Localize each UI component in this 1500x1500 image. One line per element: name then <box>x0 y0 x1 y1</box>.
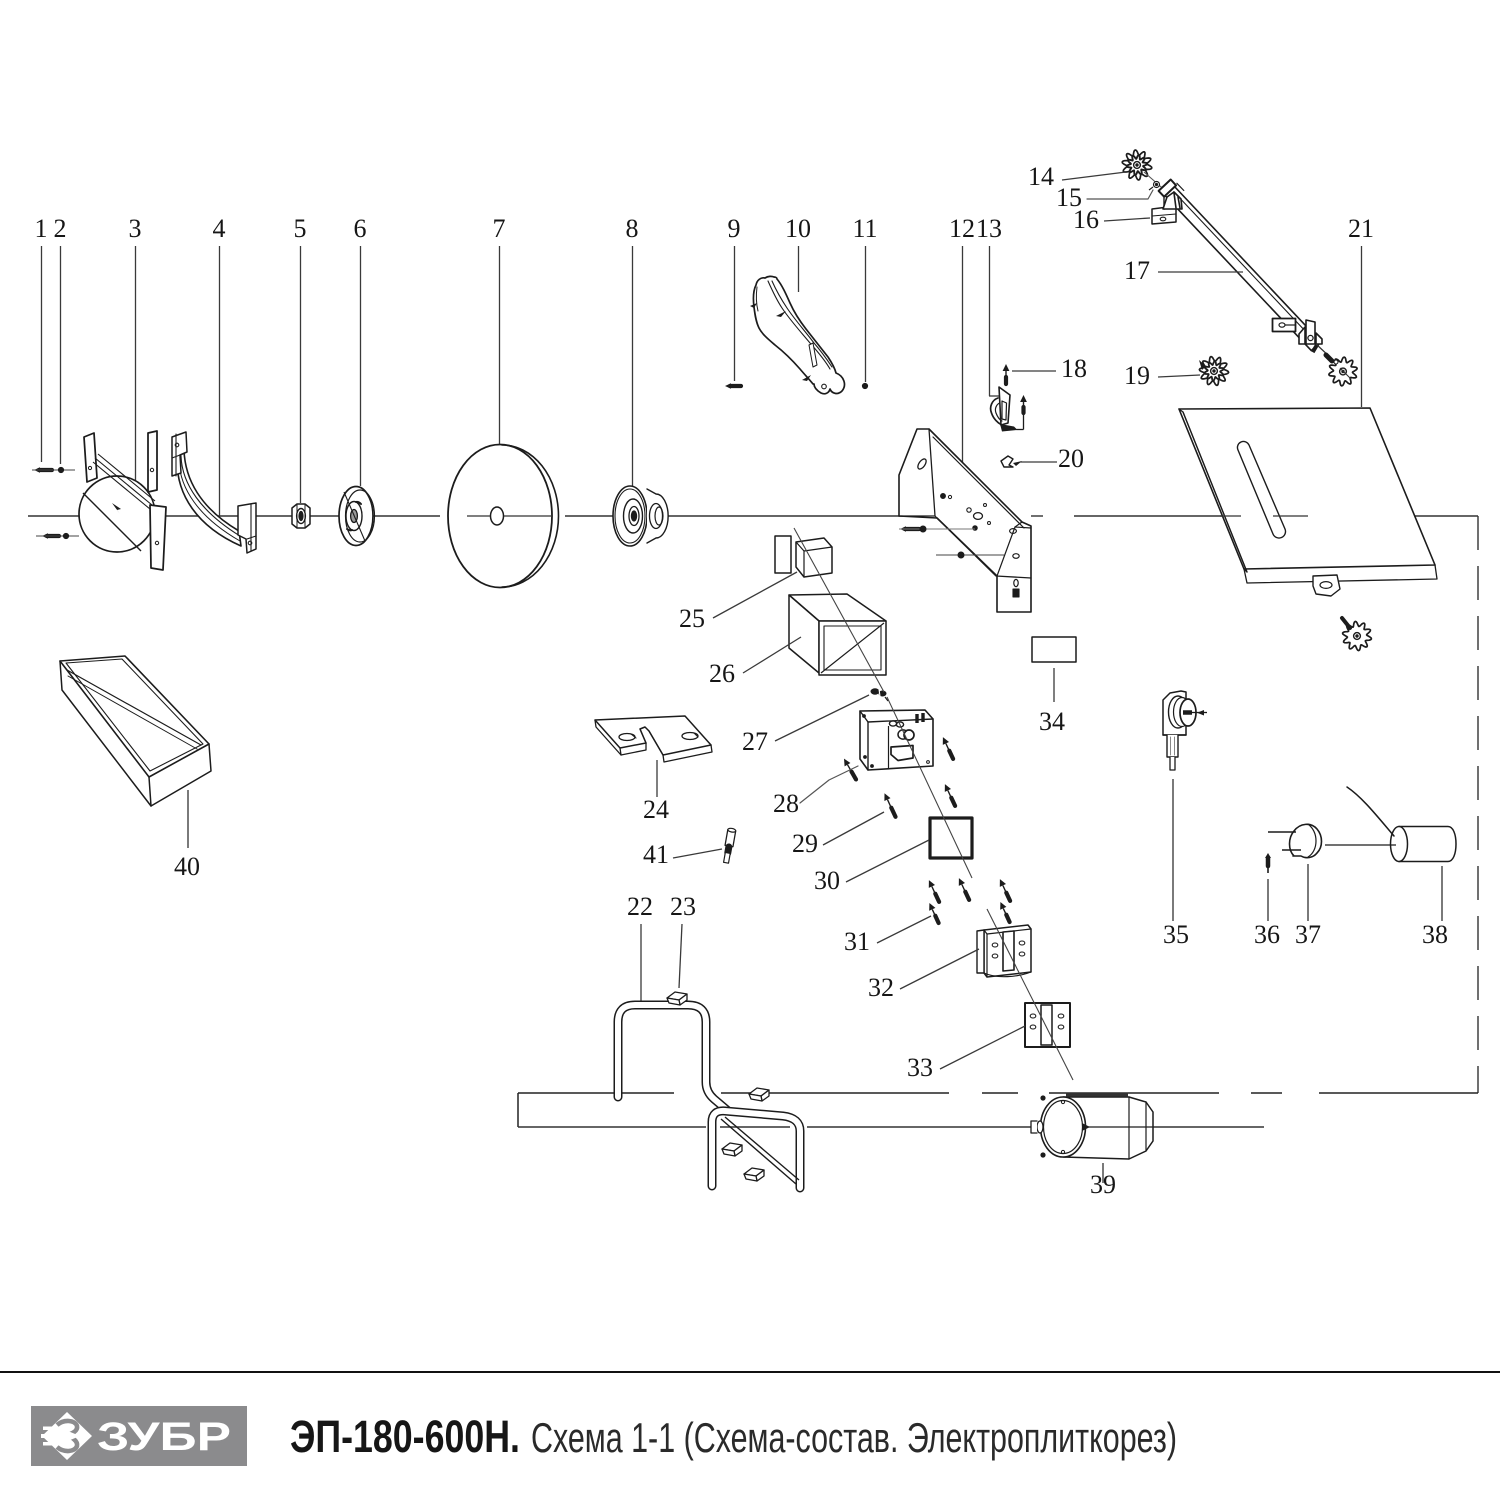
svg-text:31: 31 <box>844 927 870 956</box>
svg-text:37: 37 <box>1295 920 1321 949</box>
svg-text:ЭП-180-600Н.: ЭП-180-600Н. <box>290 1411 520 1462</box>
svg-text:7: 7 <box>493 214 506 243</box>
svg-text:40: 40 <box>174 852 200 881</box>
svg-text:38: 38 <box>1422 920 1448 949</box>
svg-text:5: 5 <box>294 214 307 243</box>
svg-text:21: 21 <box>1348 214 1374 243</box>
svg-text:ЗУБР: ЗУБР <box>97 1415 231 1459</box>
svg-text:18: 18 <box>1061 354 1087 383</box>
svg-text:20: 20 <box>1058 444 1084 473</box>
svg-text:12: 12 <box>949 214 975 243</box>
svg-text:24: 24 <box>643 795 669 824</box>
svg-text:29: 29 <box>792 829 818 858</box>
svg-text:2: 2 <box>54 214 67 243</box>
svg-text:28: 28 <box>773 789 799 818</box>
svg-text:Схема 1-1 (Схема-состав. Элект: Схема 1-1 (Схема-состав. Электроплиткоре… <box>531 1414 1177 1461</box>
svg-text:19: 19 <box>1124 361 1150 390</box>
svg-text:14: 14 <box>1028 162 1054 191</box>
svg-text:33: 33 <box>907 1053 933 1082</box>
svg-text:11: 11 <box>852 214 877 243</box>
svg-text:26: 26 <box>709 659 735 688</box>
svg-text:10: 10 <box>785 214 811 243</box>
svg-text:27: 27 <box>742 727 768 756</box>
svg-text:8: 8 <box>626 214 639 243</box>
svg-text:6: 6 <box>354 214 367 243</box>
svg-text:36: 36 <box>1254 920 1280 949</box>
svg-text:34: 34 <box>1039 707 1065 736</box>
svg-text:35: 35 <box>1163 920 1189 949</box>
svg-text:25: 25 <box>679 604 705 633</box>
svg-text:9: 9 <box>728 214 741 243</box>
svg-text:23: 23 <box>670 892 696 921</box>
svg-text:41: 41 <box>643 840 669 869</box>
svg-text:4: 4 <box>213 214 226 243</box>
svg-text:3: 3 <box>129 214 142 243</box>
svg-text:32: 32 <box>868 973 894 1002</box>
svg-text:1: 1 <box>35 214 48 243</box>
svg-text:13: 13 <box>976 214 1002 243</box>
svg-text:17: 17 <box>1124 256 1150 285</box>
svg-text:22: 22 <box>627 892 653 921</box>
svg-text:30: 30 <box>814 866 840 895</box>
svg-text:16: 16 <box>1073 205 1099 234</box>
